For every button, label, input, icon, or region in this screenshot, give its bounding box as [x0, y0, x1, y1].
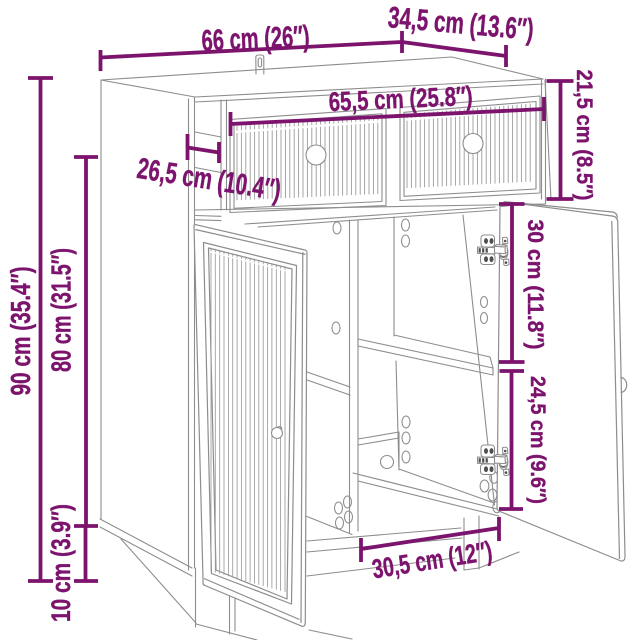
svg-text:21,5 cm (8.5″): 21,5 cm (8.5″): [572, 70, 597, 201]
svg-text:65,5 cm (25.8″): 65,5 cm (25.8″): [328, 81, 473, 117]
svg-text:30 cm (11.8″): 30 cm (11.8″): [523, 220, 548, 350]
svg-text:10 cm (3.9″): 10 cm (3.9″): [46, 504, 76, 622]
svg-text:24,5 cm (9.6″): 24,5 cm (9.6″): [526, 376, 550, 504]
svg-text:80 cm (31.5″): 80 cm (31.5″): [46, 248, 77, 372]
svg-text:90 cm (35.4″): 90 cm (35.4″): [5, 267, 36, 396]
svg-text:66 cm (26″): 66 cm (26″): [201, 20, 310, 58]
